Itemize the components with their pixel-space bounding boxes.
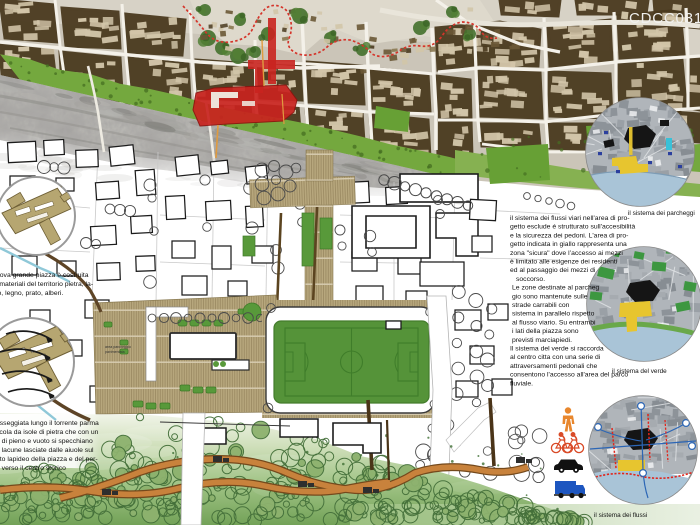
svg-text:sistema in parallelo rispetto: sistema in parallelo rispetto xyxy=(512,311,595,318)
svg-text:attraversamenti pedonali che: attraversamenti pedonali che xyxy=(510,363,597,370)
svg-text:i lati della piazza sono: i lati della piazza sono xyxy=(512,328,579,335)
svg-text:Il sistema del verde si raccor: Il sistema del verde si raccorda xyxy=(510,346,604,353)
svg-text:e la sicurezza dei pedoni. L'a: e la sicurezza dei pedoni. L'area di pro… xyxy=(510,232,628,239)
svg-text:previsti marciapiedi.: previsti marciapiedi. xyxy=(512,337,572,344)
svg-text:e lacune lasciate dalle aiuole: e lacune lasciate dalle aiuole sul xyxy=(0,447,94,454)
svg-text:getto indicata in giallo rappr: getto indicata in giallo rappresenta una xyxy=(510,241,627,248)
svg-text:i materiali del territorio pie: i materiali del territorio pietra, la- xyxy=(0,281,93,288)
svg-text:ticola da isole di pietra che: ticola da isole di pietra che con un xyxy=(0,429,99,436)
svg-text:fluviale.: fluviale. xyxy=(510,380,533,387)
svg-text:al centro citta con una serie: al centro citta con una serie di xyxy=(510,354,601,361)
svg-text:strade carrabili con: strade carrabili con xyxy=(512,302,570,309)
svg-text:il sistema dei flussi viari ne: il sistema dei flussi viari nell'area di… xyxy=(510,215,630,222)
svg-text:CDCC0316: CDCC0316 xyxy=(629,10,700,27)
svg-text:asseggiata lungo il torrente p: asseggiata lungo il torrente parma xyxy=(0,420,99,427)
svg-text:io, legno, prato, alberi.: io, legno, prato, alberi. xyxy=(0,290,63,297)
svg-text:gio sono mantenute sulle: gio sono mantenute sulle xyxy=(512,293,588,300)
svg-text:area parcheggio: area parcheggio xyxy=(105,345,131,349)
svg-text:uto lapideo della piazza e del: uto lapideo della piazza e del per- xyxy=(0,456,98,463)
svg-text:getto esclude é strutturato su: getto esclude é strutturato sull'accesib… xyxy=(510,224,635,231)
svg-text:zona "sicura" dove l’accesso a: zona "sicura" dove l’accesso ai mezzi xyxy=(510,250,623,257)
svg-text:o di pieno e vuoto si specchia: o di pieno e vuoto si specchiano xyxy=(0,438,93,445)
svg-text:ed al passaggio dei mezzi di: ed al passaggio dei mezzi di xyxy=(510,267,596,274)
svg-text:al flusso viario. Su entrambi: al flusso viario. Su entrambi xyxy=(512,319,596,326)
svg-text:il sistema dei parcheggi: il sistema dei parcheggi xyxy=(628,210,695,217)
svg-text:o verso il centro storico: o verso il centro storico xyxy=(0,465,66,472)
svg-text:soccorso.: soccorso. xyxy=(516,276,545,283)
svg-text:Le zone destinate al parcheg: Le zone destinate al parcheg xyxy=(512,285,600,292)
svg-text:il sistema dei flussi: il sistema dei flussi xyxy=(594,512,647,519)
svg-text:consentono l'accesso all'area: consentono l'accesso all'area del parco xyxy=(510,372,628,379)
svg-text:pavimentata: pavimentata xyxy=(105,350,125,354)
svg-text:è limitato alle esigenze dei r: è limitato alle esigenze dei residenti xyxy=(510,259,618,266)
svg-text:uova grande piazza è costruita: uova grande piazza è costruita xyxy=(0,272,89,279)
